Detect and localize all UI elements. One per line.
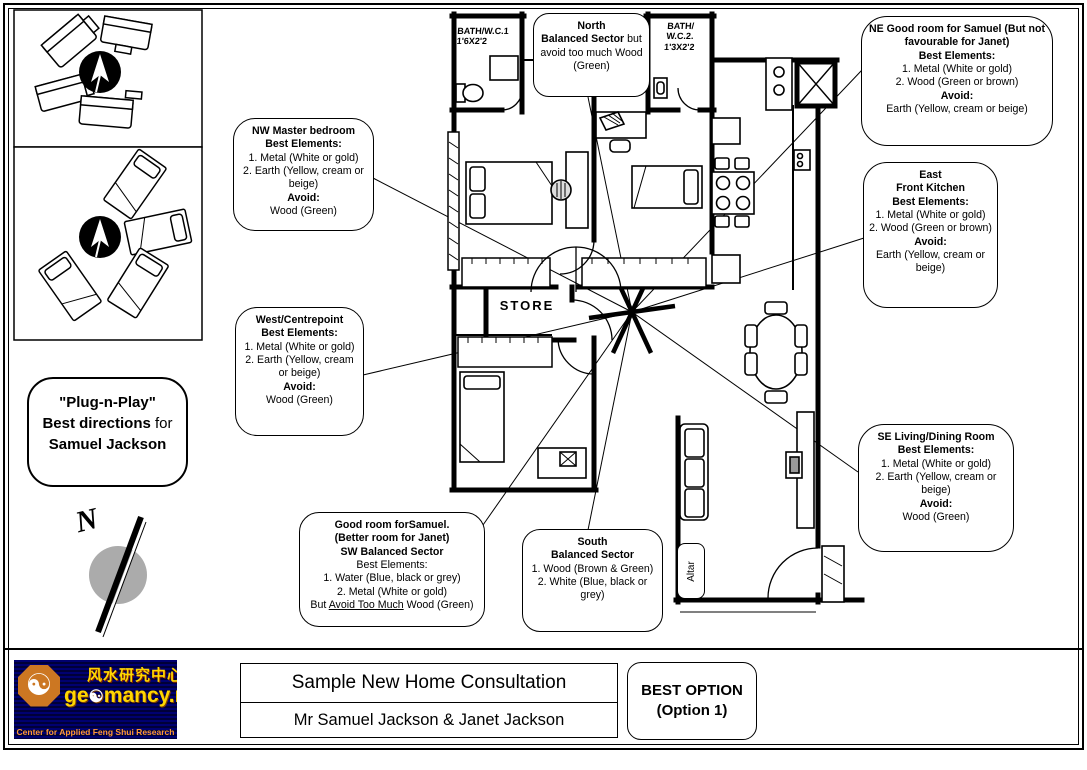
seating-directions-panel	[14, 10, 202, 147]
fridge	[712, 118, 740, 144]
callout-south: South Balanced Sector 1. Wood (Brown & G…	[522, 529, 663, 632]
yinyang-bagua-icon: ☯	[18, 665, 60, 707]
toilet-2	[654, 78, 667, 98]
sink-unit	[766, 58, 792, 110]
master-bed	[466, 162, 552, 224]
single-bed-2	[632, 166, 702, 208]
washer	[794, 150, 810, 170]
callout-east: East Front Kitchen Best Elements: 1. Met…	[863, 162, 998, 308]
project-title: Sample New Home Consultation	[241, 664, 617, 703]
toilet-1	[456, 84, 483, 102]
bath1-label: BATH/W.C.1 1'6X2'2	[456, 26, 521, 47]
dining-table	[745, 302, 807, 403]
shower-tray	[490, 56, 518, 80]
logo-brand-text: ge☯mancy.net	[64, 685, 177, 707]
kitchen-cabinet	[712, 255, 740, 283]
callout-ne: NE Good room for Samuel (But not favoura…	[861, 16, 1053, 146]
callout-north: North Balanced Sector but avoid too much…	[533, 13, 650, 97]
best-option-box: BEST OPTION (Option 1)	[627, 662, 757, 740]
geomancy-logo: ☯ 风水研究中心 ge☯mancy.net Center for Applied…	[14, 660, 177, 739]
title-block: Sample New Home Consultation Mr Samuel J…	[240, 663, 618, 738]
tv-console	[786, 412, 814, 528]
bath2-label: BATH/ W.C.2. 1'3X2'2	[651, 21, 709, 52]
desk-3	[538, 448, 586, 478]
client-names: Mr Samuel Jackson & Janet Jackson	[241, 703, 617, 737]
altar-label: Altar	[677, 543, 705, 599]
single-bed-3	[460, 372, 504, 462]
logo-chinese-text: 风水研究中心	[87, 664, 177, 685]
sofa	[680, 424, 708, 520]
kitchen-table	[712, 158, 754, 227]
shoe-cabinet	[822, 546, 844, 602]
bedroom-cabinet	[551, 152, 588, 228]
desk-2	[596, 112, 646, 152]
consultation-sheet: BATH/W.C.1 1'6X2'2 BATH/ W.C.2. 1'3X2'2 …	[0, 0, 1087, 770]
logo-tagline: Center for Applied Feng Shui Research	[14, 727, 177, 737]
callout-nw: NW Master bedroom Best Elements: 1. Meta…	[233, 118, 374, 231]
callout-west: West/Centrepoint Best Elements: 1. Metal…	[235, 307, 364, 436]
callout-se: SE Living/Dining Room Best Elements: 1. …	[858, 424, 1014, 552]
bed-directions-panel	[14, 147, 202, 340]
shaft	[797, 62, 835, 106]
plug-n-play-bubble: "Plug-n-Play" Best directions for Samuel…	[27, 377, 188, 487]
callout-sw: Good room forSamuel. (Better room for Ja…	[299, 512, 485, 627]
store-label: STORE	[487, 298, 567, 313]
yinyang-icon: ☯	[89, 687, 104, 706]
